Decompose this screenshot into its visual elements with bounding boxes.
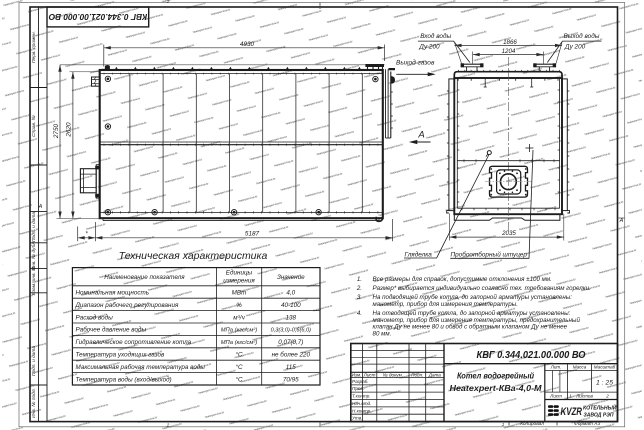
svg-text:Температура воды (вход/выход): Температура воды (вход/выход)	[76, 375, 172, 383]
svg-text:А: А	[417, 130, 424, 141]
svg-text:Подп. и дата: Подп. и дата	[31, 346, 37, 376]
svg-text:KVZR: KVZR	[561, 406, 583, 418]
svg-text:Утв.: Утв.	[352, 416, 362, 421]
svg-text:Рабочее давление воды: Рабочее давление воды	[76, 326, 147, 334]
svg-text:Все размеры для справок, допус: Все размеры для справок, допустимые откл…	[373, 276, 552, 283]
svg-text:Котел водогрейный: Котел водогрейный	[457, 372, 534, 381]
svg-text:№ докум.: № докум.	[383, 372, 403, 377]
svg-text:Справ. №: Справ. №	[31, 115, 37, 137]
svg-text:Расход воды: Расход воды	[76, 313, 114, 321]
svg-text:Техническая характеристика: Техническая характеристика	[119, 250, 268, 262]
svg-text:Лист: Лист	[549, 394, 562, 399]
svg-text:°С: °С	[235, 375, 243, 383]
svg-text:Максимальная рабочая температу: Максимальная рабочая температура воды	[76, 363, 206, 371]
svg-text:КВГ 0.344.021.00.000 ВО: КВГ 0.344.021.00.000 ВО	[48, 12, 147, 22]
svg-text:138: 138	[286, 314, 297, 321]
svg-text:Ду 200: Ду 200	[564, 43, 586, 50]
svg-text:4.: 4.	[357, 310, 362, 317]
svg-text:0,3(3,0)-0,6(6,0): 0,3(3,0)-0,6(6,0)	[271, 328, 312, 334]
svg-text:115: 115	[286, 364, 297, 371]
svg-text:КВГ 0.344.021.00.000 ВО: КВГ 0.344.021.00.000 ВО	[477, 350, 586, 361]
svg-text:А: А	[38, 204, 43, 210]
svg-text:Инв. № подл.: Инв. № подл.	[31, 388, 37, 418]
svg-text:Ду 200: Ду 200	[418, 43, 440, 50]
svg-text:1204: 1204	[502, 48, 516, 55]
svg-text:Размер* выбирается индивидуаль: Размер* выбирается индивидуально согласн…	[373, 285, 591, 292]
svg-text:80 мм.: 80 мм.	[373, 330, 392, 337]
svg-text:Вход воды: Вход воды	[420, 32, 451, 40]
svg-text:°С: °С	[235, 351, 243, 359]
svg-text:Номинальная мощность: Номинальная мощность	[76, 290, 150, 297]
svg-text:2750: 2750	[53, 123, 60, 139]
svg-text:Изм.: Изм.	[352, 372, 362, 377]
svg-text:70/95: 70/95	[283, 376, 299, 383]
svg-text:40-100: 40-100	[281, 302, 301, 309]
svg-text:1: 1	[569, 394, 572, 399]
svg-text:Лист: Лист	[363, 372, 376, 377]
svg-text:Копировал: Копировал	[520, 421, 544, 427]
svg-text:1.: 1.	[357, 276, 362, 283]
svg-text:Н.контр.: Н.контр.	[352, 408, 371, 413]
svg-text:2.: 2.	[356, 285, 362, 292]
svg-text:Heatexpert-КВа-4,0-М: Heatexpert-КВа-4,0-М	[450, 384, 542, 393]
svg-text:Значение: Значение	[277, 274, 305, 281]
svg-text:3.: 3.	[357, 294, 362, 301]
svg-text:клапан Ду не менее 80 и обвод: клапан Ду не менее 80 и обвод с обратным…	[373, 324, 568, 331]
svg-text:2620: 2620	[66, 122, 73, 138]
svg-text:Формат А3: Формат А3	[574, 421, 601, 427]
svg-text:Перв. примен.: Перв. примен.	[31, 31, 37, 63]
svg-text:2035: 2035	[501, 230, 516, 237]
svg-text:1866: 1866	[503, 39, 517, 46]
svg-text:5187: 5187	[245, 231, 260, 238]
svg-text:Гляделка: Гляделка	[405, 250, 433, 258]
svg-text:Подп. и дата: Подп. и дата	[31, 212, 37, 242]
svg-text:Дата: Дата	[428, 372, 442, 377]
svg-text:Разраб.: Разраб.	[352, 379, 369, 384]
svg-text:Пров.: Пров.	[352, 386, 364, 391]
svg-text:измерения: измерения	[223, 278, 255, 285]
svg-text:Подп.: Подп.	[411, 372, 423, 377]
svg-text:Гидравлическое сопротивление к: Гидравлическое сопротивление котла	[76, 338, 192, 346]
svg-text:Диапазон рабочего регулировани: Диапазон рабочего регулирования	[75, 301, 179, 309]
svg-text:м³/ч: м³/ч	[233, 314, 245, 321]
svg-text:Единицы: Единицы	[226, 269, 253, 277]
svg-text:Масса: Масса	[573, 364, 587, 369]
svg-text:МПа (кгс/см²): МПа (кгс/см²)	[221, 328, 258, 334]
svg-text:МВт: МВт	[232, 290, 247, 297]
svg-text:Выход газов: Выход газов	[396, 59, 435, 67]
svg-text:4930: 4930	[240, 41, 255, 48]
svg-text:А: А	[619, 218, 624, 224]
svg-text:Взам. инв. №: Взам. инв. №	[31, 266, 37, 296]
svg-text:КОТЕЛЬНЫЙ: КОТЕЛЬНЫЙ	[583, 403, 617, 411]
svg-text:Масштаб: Масштаб	[594, 364, 616, 369]
svg-text:0,07(0,7): 0,07(0,7)	[278, 339, 303, 346]
svg-text:Т.контр.: Т.контр.	[352, 394, 371, 399]
svg-text:Наименование показателя: Наименование показателя	[104, 274, 185, 281]
svg-text:Лит.: Лит.	[550, 364, 562, 369]
svg-text:Пробоотборный штуцер: Пробоотборный штуцер	[451, 251, 528, 259]
svg-text:Температура уходящих газов: Температура уходящих газов	[76, 351, 165, 359]
svg-text:2: 2	[166, 423, 170, 428]
svg-text:Нач.отд.: Нач.отд.	[352, 401, 371, 406]
svg-text:ЗАВОД РЭП: ЗАВОД РЭП	[584, 412, 615, 418]
svg-text:не более 220: не более 220	[272, 351, 311, 359]
svg-text:2: 2	[166, 0, 170, 4]
svg-text:МПа (кгс/см²): МПа (кгс/см²)	[221, 340, 258, 346]
svg-text:1 : 25: 1 : 25	[596, 380, 613, 387]
svg-text:4,0: 4,0	[286, 290, 295, 297]
svg-text:Листов: Листов	[575, 394, 593, 399]
svg-text:На подводящей трубе котла, до: На подводящей трубе котла, до запорной а…	[373, 294, 573, 301]
svg-text:%: %	[236, 302, 242, 309]
svg-text:Выход воды: Выход воды	[564, 32, 600, 40]
svg-text:°С: °С	[235, 363, 243, 371]
svg-text:манометр, прибор для измерения: манометр, прибор для измерения температу…	[373, 301, 518, 308]
svg-text:2: 2	[605, 394, 609, 399]
